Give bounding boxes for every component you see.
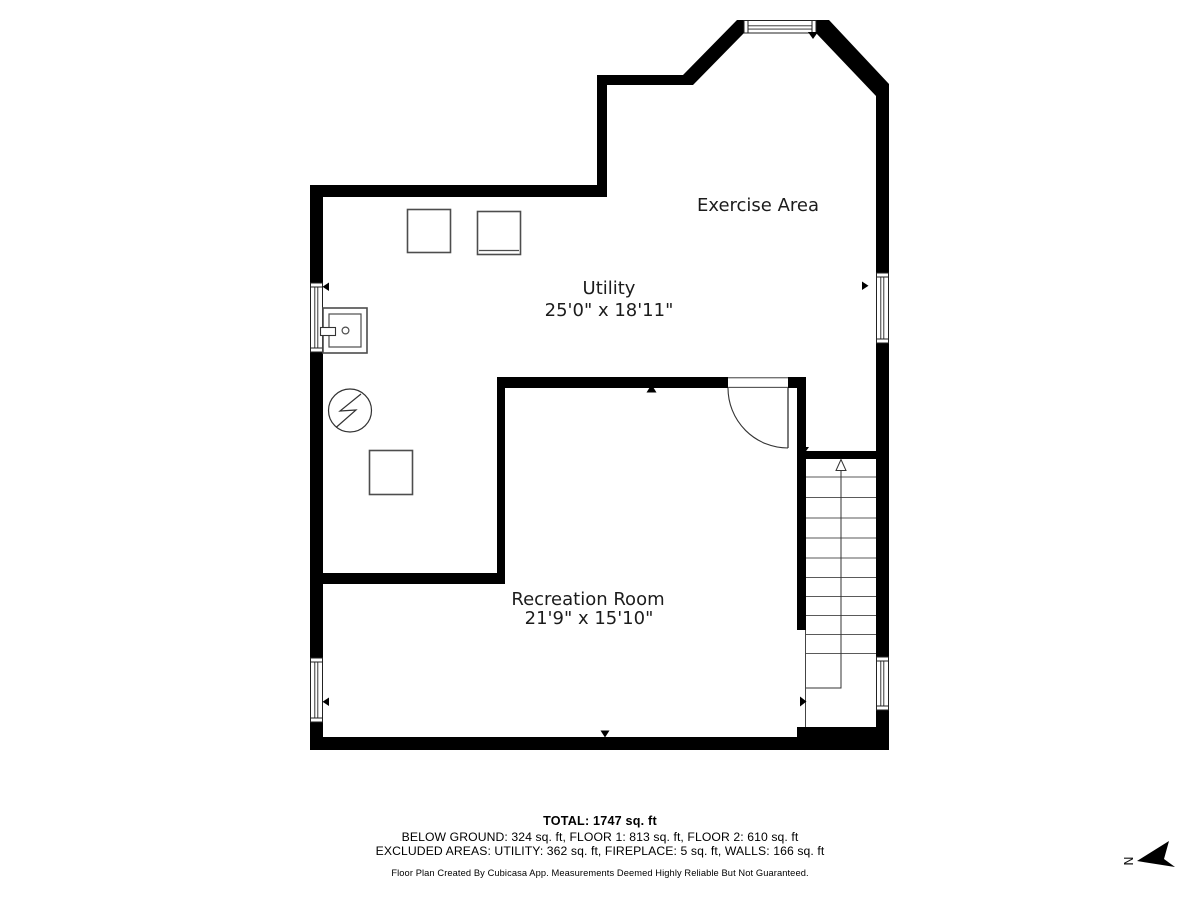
footer-disclaimer: Floor Plan Created By Cubicasa App. Meas… [0, 868, 1200, 878]
window-right-upper [876, 273, 889, 343]
electrical-panel-icon [329, 389, 372, 432]
stair-direction-arrow [836, 460, 846, 471]
wall-step-vertical [597, 75, 607, 197]
floor-plan-svg: Exercise Area Utility 25'0" x 18'11" Rec… [0, 0, 1200, 900]
door-swing-arc [728, 388, 788, 448]
window-left-upper [310, 283, 323, 352]
wall-interior-vertical [497, 377, 505, 584]
wall-stairwell-left [797, 377, 806, 630]
marker-bottom-wall [601, 731, 610, 738]
room-label-exercise-area: Exercise Area [697, 195, 819, 216]
wall-stairwell-top [797, 451, 889, 459]
stair-walkline [806, 470, 841, 688]
marker-window-right-upper [862, 282, 869, 291]
wall-interior-horizontal [310, 573, 505, 584]
wall-bay-left-angled [683, 20, 744, 85]
storage-box-icon [370, 451, 413, 495]
washer-box-icon [408, 210, 451, 253]
room-labels: Exercise Area Utility 25'0" x 18'11" Rec… [511, 195, 819, 629]
room-label-recreation-room: Recreation Room [511, 589, 664, 610]
wall-top-left [310, 185, 607, 197]
room-dims-recreation-room: 21'9" x 15'10" [525, 608, 654, 629]
floor-plan-page: Exercise Area Utility 25'0" x 18'11" Rec… [0, 0, 1200, 900]
marker-window-left-lower [323, 698, 330, 707]
footer-excluded-areas: EXCLUDED AREAS: UTILITY: 362 sq. ft, FIR… [0, 844, 1200, 858]
fixtures [321, 210, 521, 495]
wall-stair-bottom [797, 727, 889, 750]
marker-window-left-upper [323, 283, 330, 292]
window-stairs [876, 657, 889, 710]
marker-top-window [808, 32, 818, 39]
wall-right [876, 84, 889, 750]
footer-floor-breakdown: BELOW GROUND: 324 sq. ft, FLOOR 1: 813 s… [0, 830, 1200, 844]
room-label-utility: Utility [583, 278, 636, 299]
window-top-bay [744, 21, 816, 34]
door-utility [728, 377, 788, 449]
room-dims-utility: 25'0" x 18'11" [545, 300, 674, 321]
laundry-sink-icon [321, 308, 368, 353]
footer-total: TOTAL: 1747 sq. ft [0, 814, 1200, 828]
dryer-box-icon [478, 212, 521, 255]
door-opening [728, 377, 788, 389]
wall-step-horizontal [597, 75, 683, 85]
staircase [800, 460, 876, 728]
window-left-lower [310, 658, 323, 722]
